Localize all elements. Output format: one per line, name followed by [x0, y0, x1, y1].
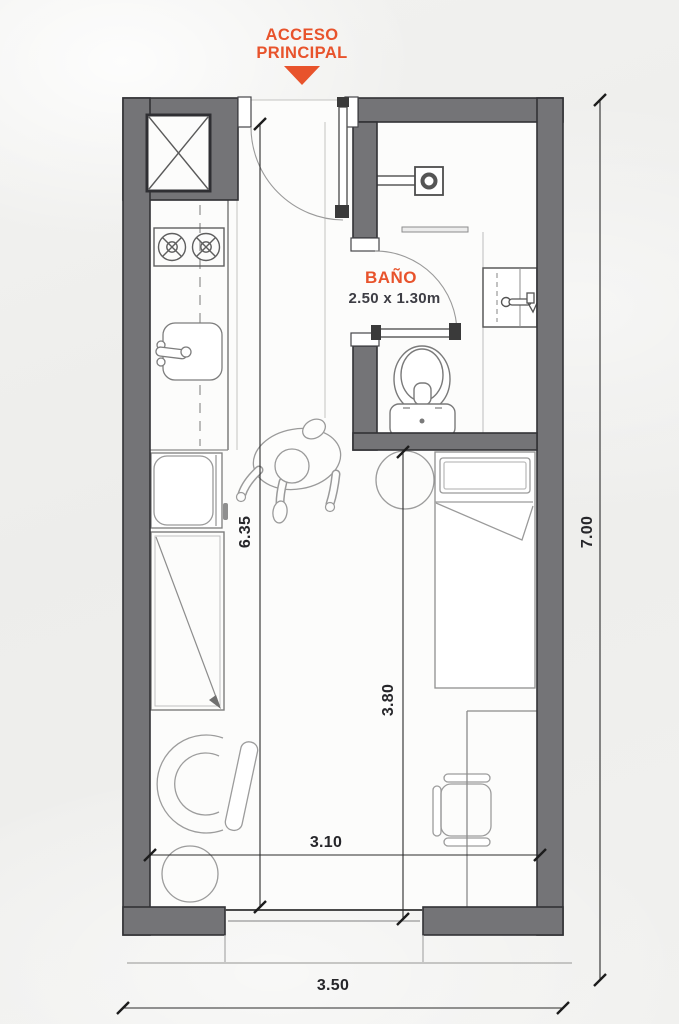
- dim-label-overall-depth: 7.00: [577, 500, 599, 564]
- bathroom-size-label: 2.50 x 1.30m: [322, 290, 467, 307]
- fridge: [151, 453, 228, 528]
- ventilation-shaft: [147, 115, 210, 191]
- stool: [376, 451, 434, 509]
- access-arrow-icon: [284, 66, 320, 85]
- dim-label-interior-width: 3.10: [294, 832, 358, 854]
- dim-label-overall-width: 3.50: [301, 975, 365, 997]
- access-label-line2: PRINCIPAL: [232, 44, 372, 62]
- bathroom-label: BAÑO: [331, 268, 451, 288]
- access-label: ACCESO PRINCIPAL: [232, 26, 372, 62]
- bed: [435, 452, 535, 688]
- access-label-line1: ACCESO: [232, 26, 372, 44]
- dim-label-bedroom-depth: 3.80: [378, 668, 400, 732]
- floor-plan-canvas: ACCESO PRINCIPAL BAÑO 2.50 x 1.30m 6.35 …: [0, 0, 679, 1024]
- kitchen-sink: [155, 323, 222, 380]
- dim-label-interior-length: 6.35: [235, 500, 257, 564]
- toilet: [390, 346, 455, 437]
- shower-screen: [402, 227, 468, 232]
